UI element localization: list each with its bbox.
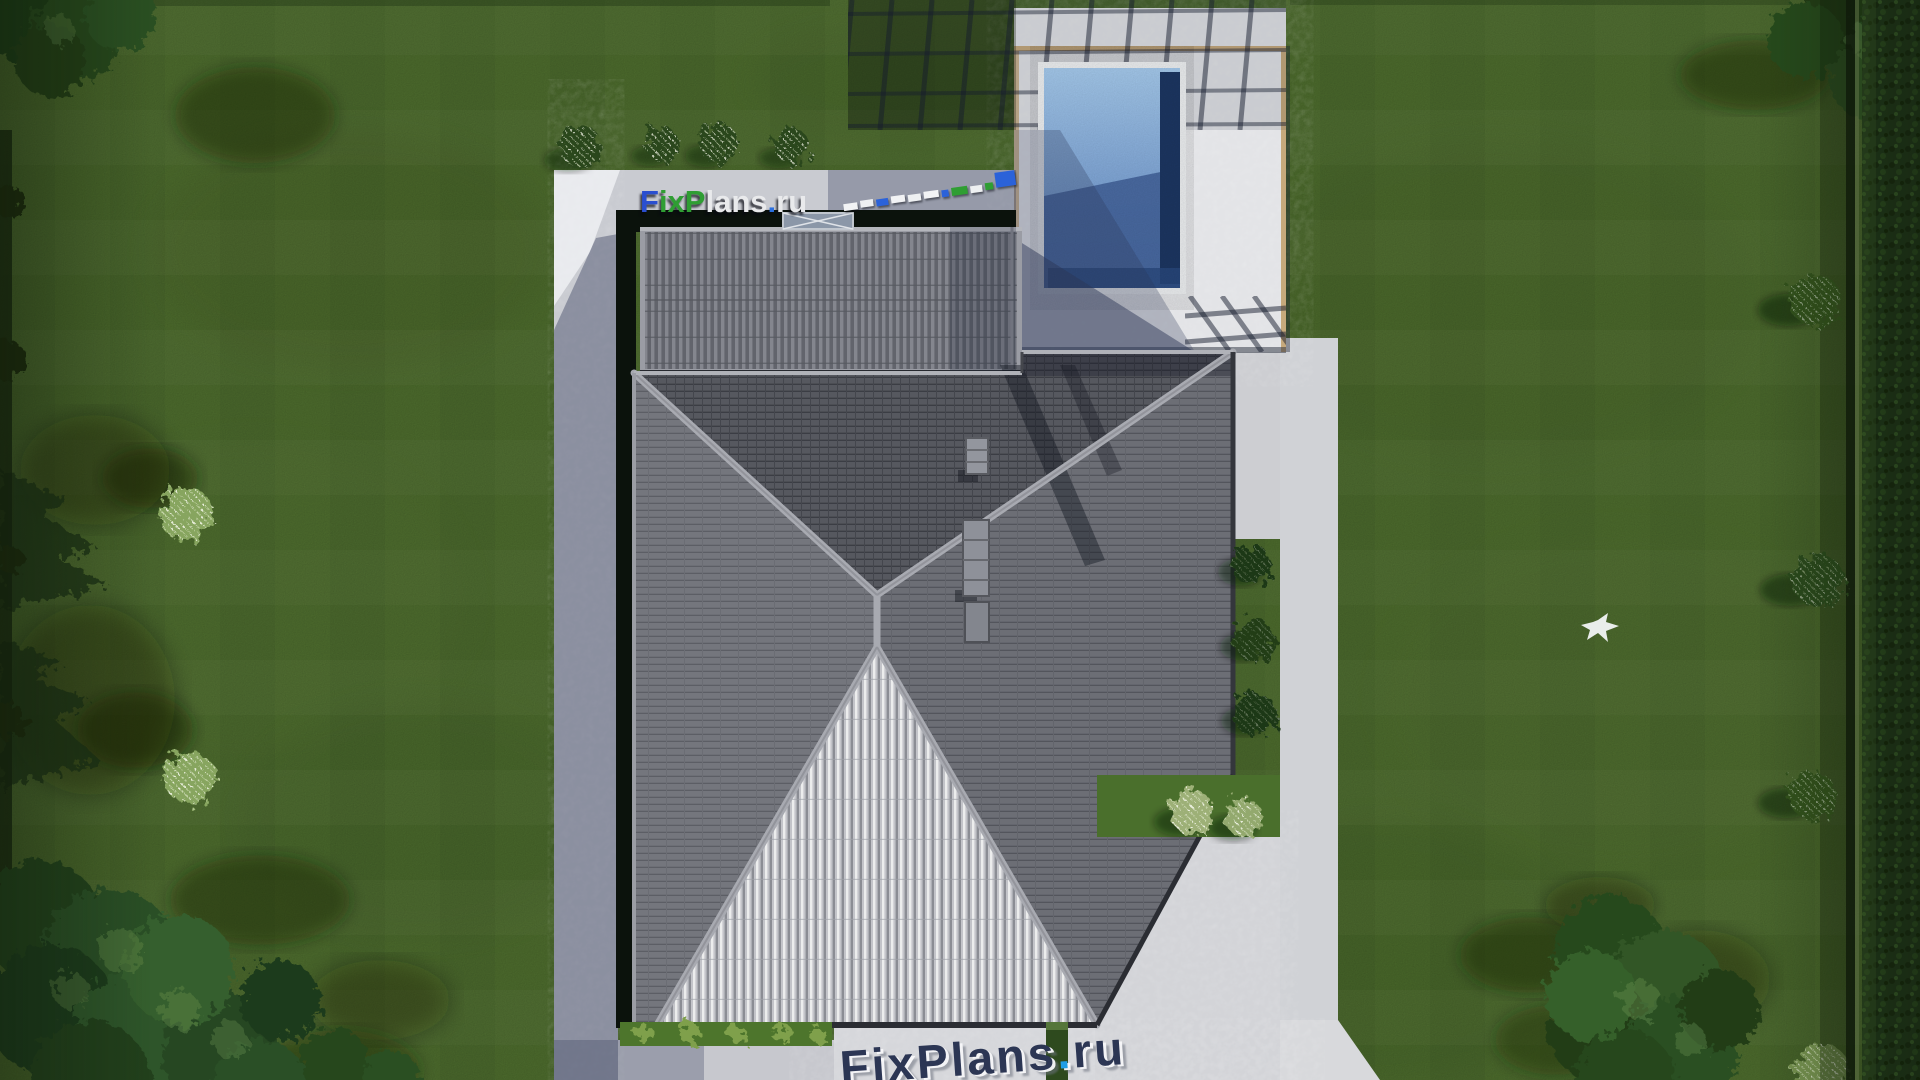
dash-block <box>908 193 922 202</box>
dash-block <box>891 195 906 204</box>
watermark-letter: . <box>768 184 777 220</box>
dash-block <box>923 190 939 199</box>
dash-block <box>985 182 994 190</box>
scene-canvas <box>0 0 1920 1080</box>
watermark-letter: ru <box>776 184 807 220</box>
east-path <box>1280 338 1338 1080</box>
main-hip-roof <box>634 352 1233 1025</box>
garage-ribbed-roof <box>640 213 1022 374</box>
aerial-site-render: FixPlans.ru FixPlans.ru <box>0 0 1920 1080</box>
dash-block <box>970 185 983 194</box>
watermark-letter: F <box>640 184 659 220</box>
dash-block <box>941 189 949 197</box>
watermark-letter: ix <box>659 184 685 220</box>
watermark-letter: ru <box>1071 1021 1128 1078</box>
watermark-letter: P <box>685 184 706 220</box>
dash-block <box>876 198 889 207</box>
dash-block <box>994 170 1016 188</box>
tree-shadow <box>175 67 335 163</box>
east-house-strip <box>1233 352 1280 539</box>
dash-block <box>860 199 874 208</box>
dash-block <box>951 186 968 196</box>
watermark-letter: lans <box>705 184 767 220</box>
watermark-logo-top: FixPlans.ru <box>640 184 807 220</box>
dash-block <box>843 202 858 211</box>
